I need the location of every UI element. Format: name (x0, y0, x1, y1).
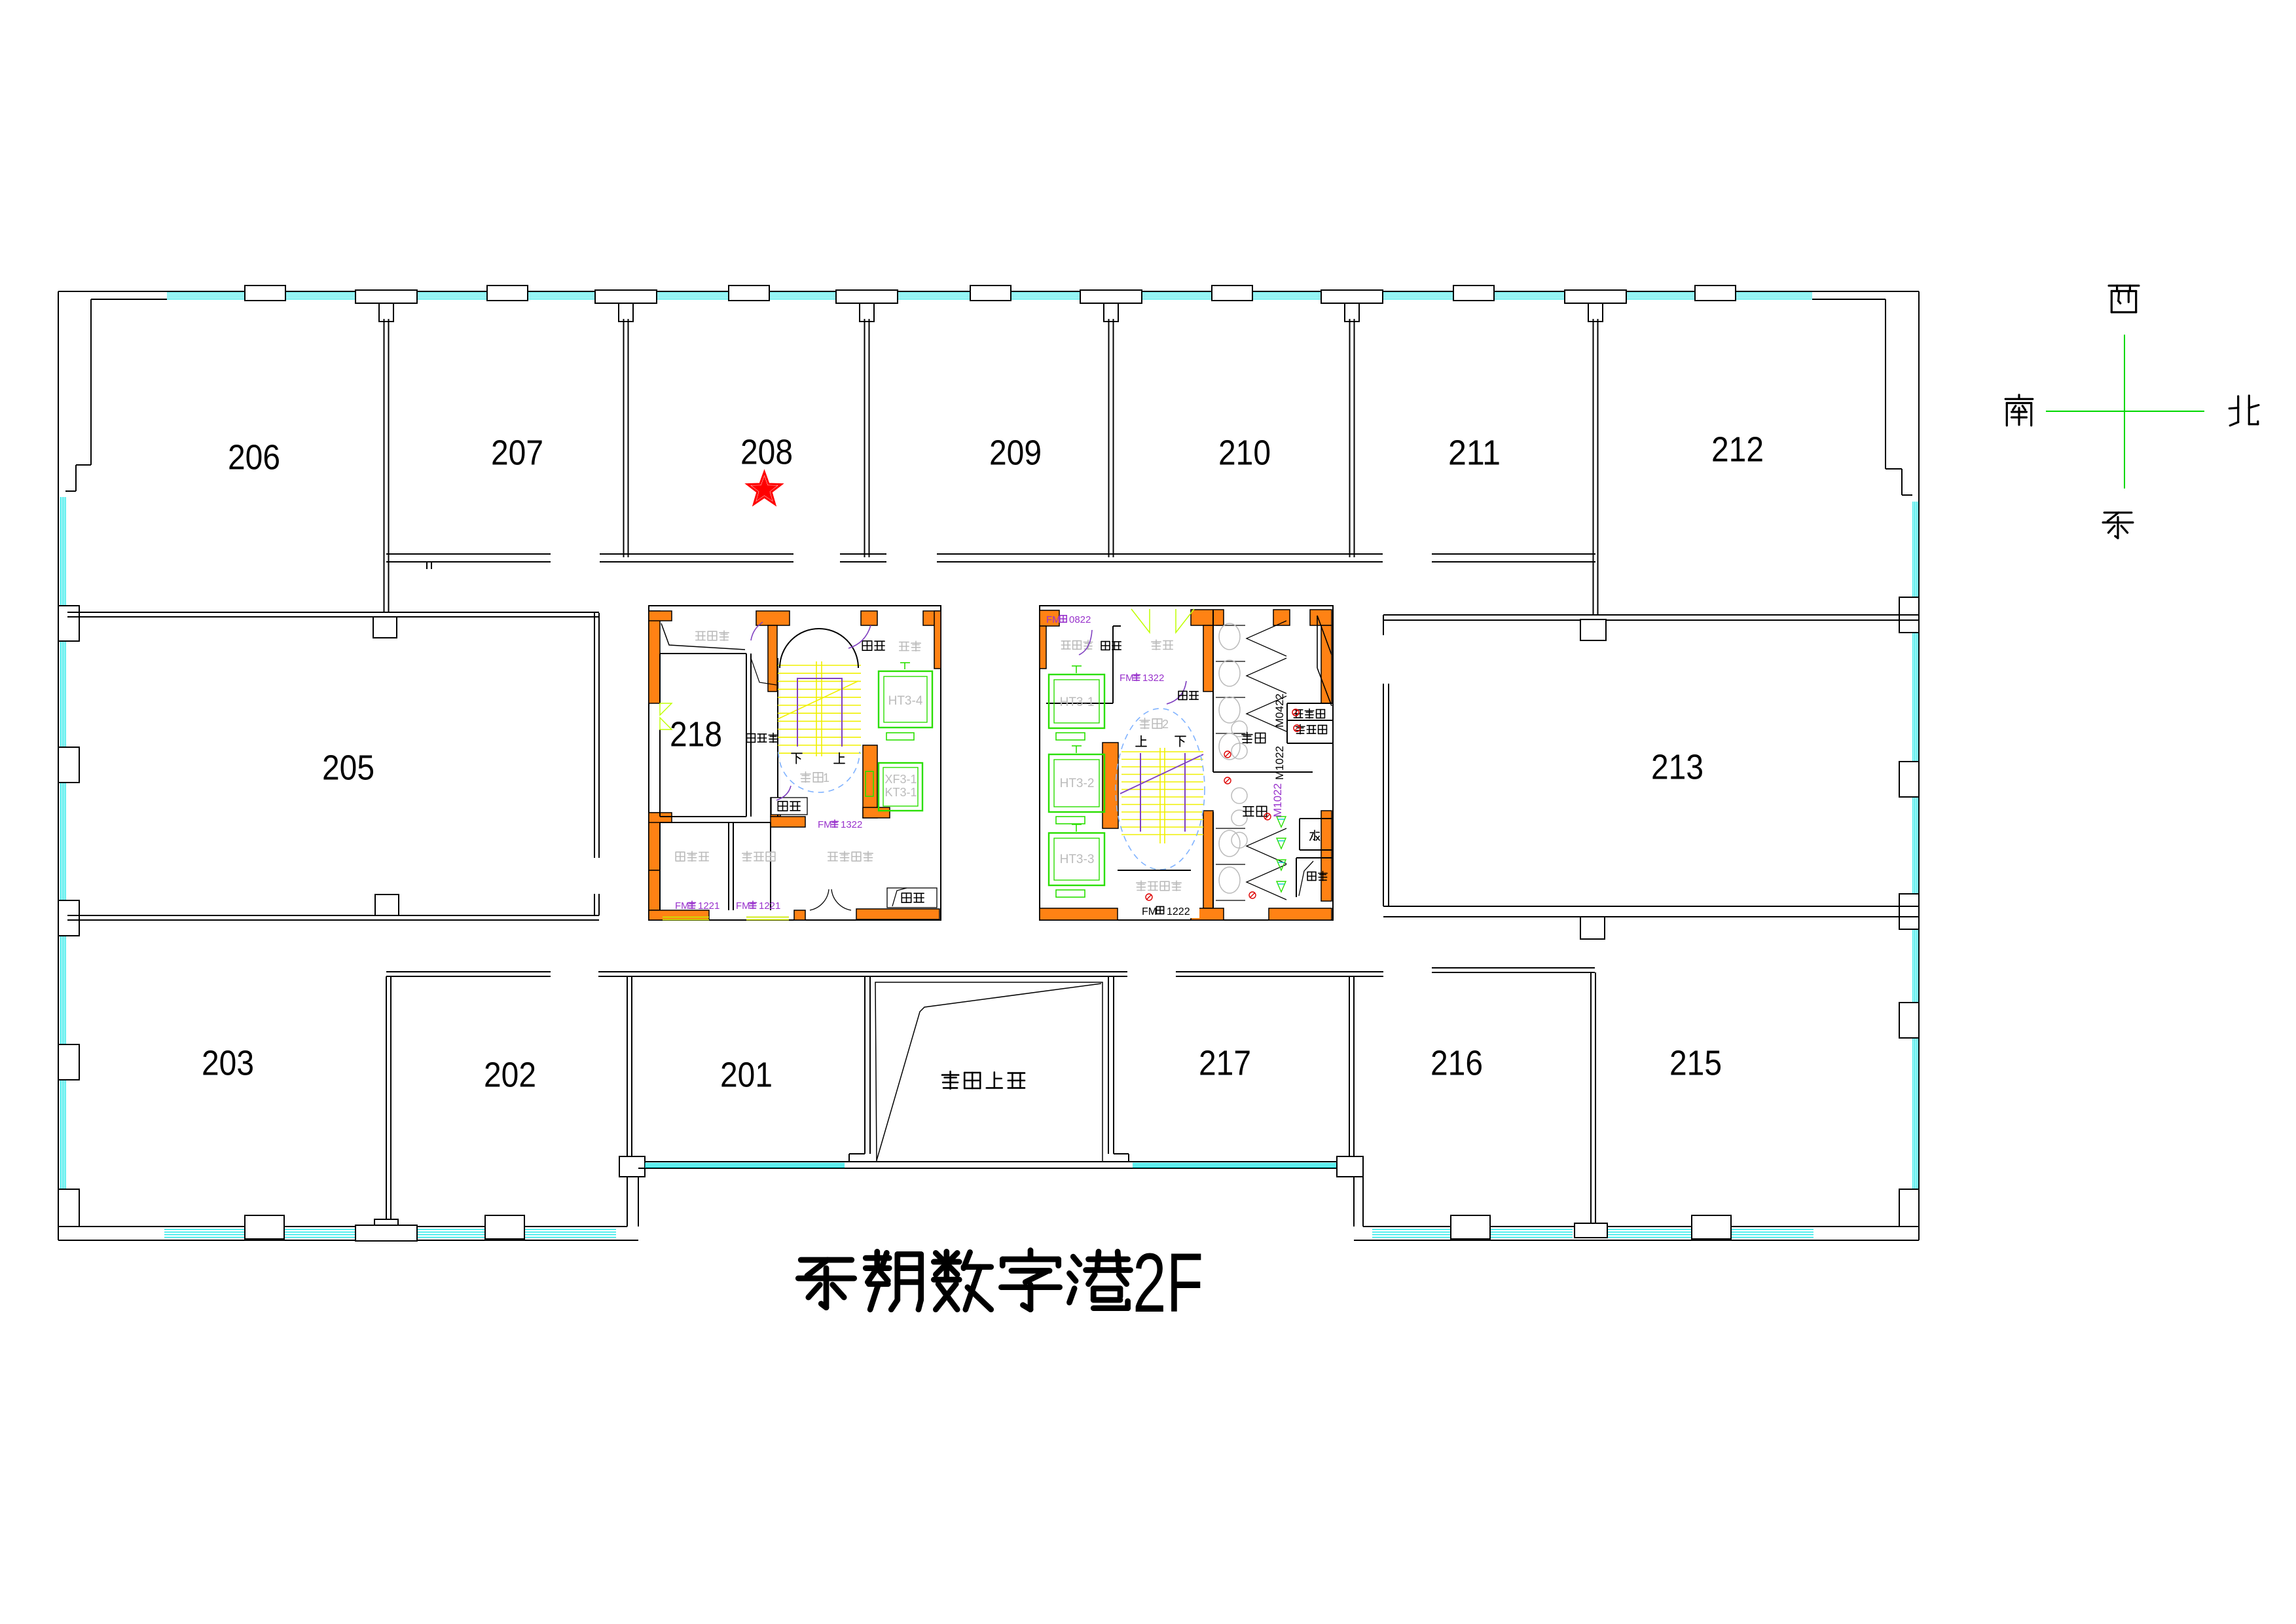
svg-text:210: 210 (1218, 434, 1271, 473)
svg-text:HT3-2: HT3-2 (1060, 777, 1095, 790)
svg-text:FM: FM (1142, 906, 1157, 917)
svg-text:208: 208 (740, 433, 793, 472)
svg-text:M1022: M1022 (1273, 746, 1286, 780)
svg-text:1322: 1322 (1142, 673, 1164, 684)
svg-text:HT3-3: HT3-3 (1060, 853, 1095, 866)
svg-text:M1022: M1022 (1271, 783, 1284, 817)
svg-text:1221: 1221 (759, 900, 780, 912)
svg-text:XF3-1: XF3-1 (884, 773, 917, 786)
svg-text:HT3-4: HT3-4 (888, 694, 923, 708)
svg-text:1222: 1222 (1167, 906, 1190, 917)
svg-text:202: 202 (484, 1056, 536, 1095)
svg-text:1: 1 (823, 771, 829, 784)
svg-text:FM: FM (818, 819, 832, 830)
svg-text:213: 213 (1651, 748, 1704, 787)
svg-text:HT3-1: HT3-1 (1060, 695, 1095, 709)
svg-text:215: 215 (1669, 1044, 1722, 1083)
svg-text:216: 216 (1430, 1044, 1483, 1083)
svg-text:206: 206 (228, 438, 280, 477)
svg-text:FM: FM (1046, 614, 1061, 625)
svg-text:FM: FM (736, 900, 750, 912)
svg-text:FM: FM (675, 900, 689, 912)
svg-text:209: 209 (989, 434, 1042, 473)
svg-text:2F: 2F (1133, 1236, 1203, 1330)
svg-text:218: 218 (670, 715, 722, 754)
svg-text:2: 2 (1162, 718, 1169, 731)
svg-text:1221: 1221 (698, 900, 720, 912)
svg-text:211: 211 (1448, 434, 1501, 473)
svg-text:201: 201 (720, 1056, 773, 1095)
svg-text:205: 205 (322, 748, 374, 788)
svg-text:FM: FM (1120, 673, 1134, 684)
svg-text:203: 203 (202, 1044, 254, 1083)
svg-text:1322: 1322 (841, 819, 862, 830)
svg-text:217: 217 (1199, 1044, 1251, 1083)
svg-text:212: 212 (1711, 430, 1764, 470)
svg-text:0822: 0822 (1069, 614, 1091, 625)
svg-text:M0422: M0422 (1273, 693, 1286, 728)
svg-text:KT3-1: KT3-1 (884, 786, 917, 799)
svg-text:207: 207 (491, 434, 543, 473)
